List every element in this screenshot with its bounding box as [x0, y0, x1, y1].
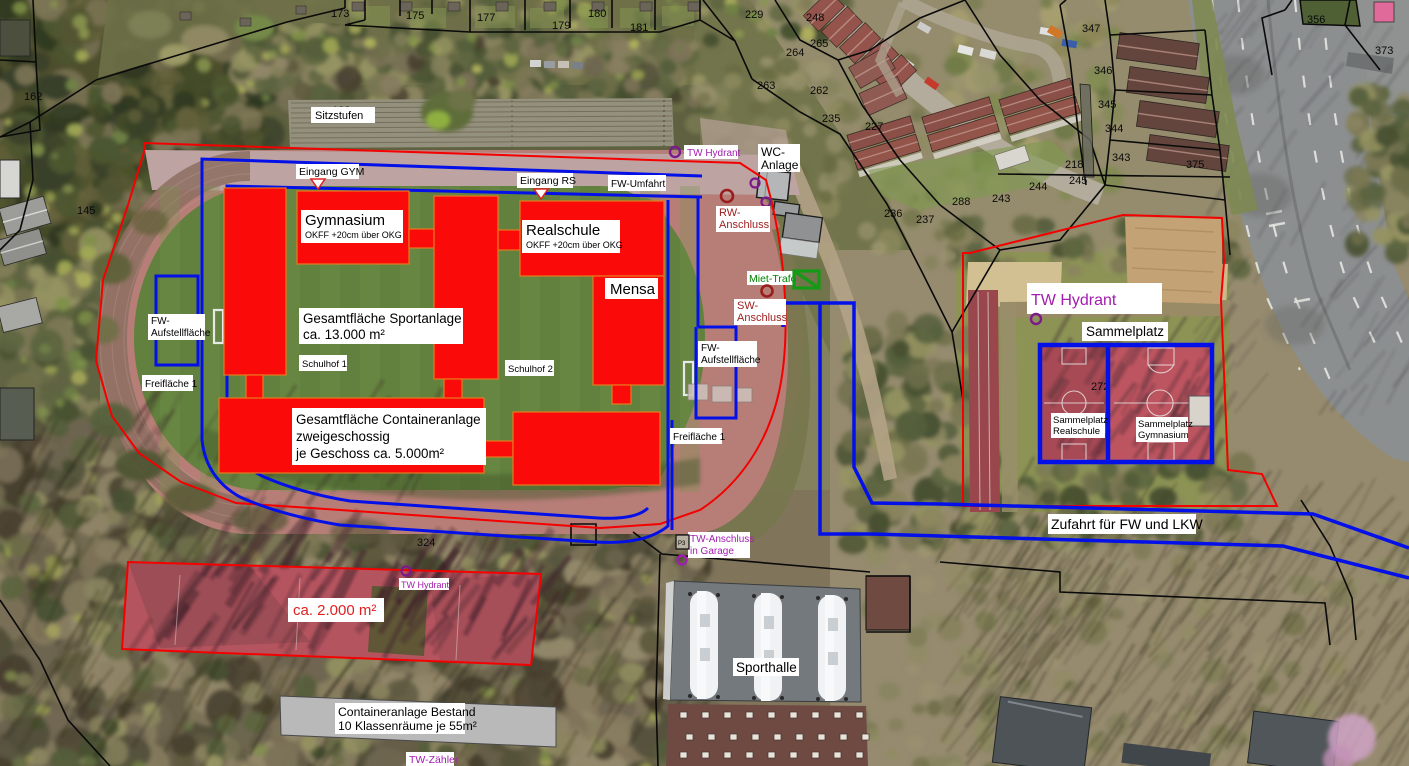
svg-text:zweigeschossig: zweigeschossig	[296, 429, 390, 444]
svg-text:288: 288	[952, 196, 970, 208]
svg-text:TW-Anschluss: TW-Anschluss	[690, 534, 754, 545]
svg-text:343: 343	[1112, 152, 1130, 164]
svg-text:Anlage: Anlage	[761, 158, 799, 172]
svg-text:Sporthalle: Sporthalle	[736, 660, 797, 675]
svg-text:je Geschoss ca. 5.000m²: je Geschoss ca. 5.000m²	[295, 446, 445, 461]
svg-text:175: 175	[406, 10, 424, 22]
svg-text:324: 324	[417, 537, 435, 549]
svg-text:245: 245	[1069, 175, 1087, 187]
svg-text:229: 229	[745, 9, 763, 21]
svg-text:243: 243	[992, 193, 1010, 205]
svg-text:145: 145	[77, 205, 95, 217]
svg-text:Gymnasium: Gymnasium	[1138, 430, 1189, 441]
svg-text:Realschule: Realschule	[1053, 426, 1100, 437]
svg-text:Gesamtfläche Containeranlage: Gesamtfläche Containeranlage	[296, 412, 481, 427]
svg-text:264: 264	[786, 47, 804, 59]
svg-text:Sitzstufen: Sitzstufen	[315, 110, 363, 122]
svg-text:Containeranlage Bestand: Containeranlage Bestand	[338, 705, 476, 719]
svg-text:Anschluss: Anschluss	[719, 219, 770, 231]
svg-text:265: 265	[810, 38, 828, 50]
svg-text:177: 177	[477, 12, 495, 24]
svg-text:TW Hydrant: TW Hydrant	[687, 148, 741, 159]
svg-text:Miet-Trafo: Miet-Trafo	[749, 273, 797, 285]
svg-text:Schulhof 1: Schulhof 1	[302, 359, 347, 370]
svg-text:236: 236	[884, 208, 902, 220]
svg-text:262: 262	[810, 85, 828, 97]
svg-text:180: 180	[588, 8, 606, 20]
svg-text:248: 248	[806, 12, 824, 24]
svg-text:Anschluss: Anschluss	[737, 312, 788, 324]
svg-text:FW-: FW-	[151, 316, 170, 327]
svg-text:181: 181	[630, 22, 648, 34]
svg-text:TW-Zähler: TW-Zähler	[409, 754, 459, 766]
svg-text:WC-: WC-	[761, 145, 785, 159]
svg-text:Aufstellfläche: Aufstellfläche	[151, 328, 211, 339]
svg-text:Sammelplatz: Sammelplatz	[1053, 415, 1108, 426]
svg-text:Gymnasium: Gymnasium	[305, 212, 385, 229]
svg-text:346: 346	[1094, 65, 1112, 77]
svg-text:227: 227	[865, 121, 883, 133]
svg-text:in Garage: in Garage	[690, 546, 734, 557]
svg-text:Mensa: Mensa	[610, 281, 656, 298]
svg-text:373: 373	[1375, 45, 1393, 57]
svg-text:Eingang RS: Eingang RS	[520, 175, 576, 187]
svg-text:Gesamtfläche Sportanlage: Gesamtfläche Sportanlage	[303, 311, 462, 326]
svg-text:OKFF +20cm über OKG: OKFF +20cm über OKG	[305, 230, 402, 240]
svg-text:OKFF +20cm über OKG: OKFF +20cm über OKG	[526, 240, 623, 250]
svg-text:Freifläche 1: Freifläche 1	[673, 432, 726, 443]
svg-text:162: 162	[24, 91, 42, 103]
svg-text:10 Klassenräume je 55m²: 10 Klassenräume je 55m²	[338, 719, 477, 733]
svg-text:Aufstellfläche: Aufstellfläche	[701, 355, 761, 366]
svg-text:344: 344	[1105, 123, 1123, 135]
svg-text:173: 173	[331, 8, 349, 20]
svg-text:TW Hydrant: TW Hydrant	[401, 580, 450, 590]
svg-text:FW-: FW-	[701, 343, 720, 354]
svg-text:ca. 13.000 m²: ca. 13.000 m²	[303, 327, 385, 342]
svg-text:347: 347	[1082, 23, 1100, 35]
svg-text:356: 356	[1307, 14, 1325, 26]
svg-text:FW-Umfahrt: FW-Umfahrt	[611, 179, 665, 190]
svg-text:Sammelplatz: Sammelplatz	[1086, 324, 1164, 339]
svg-text:235: 235	[822, 113, 840, 125]
svg-text:218: 218	[1065, 159, 1083, 171]
svg-text:Schulhof 2: Schulhof 2	[508, 364, 553, 375]
svg-text:Eingang GYM: Eingang GYM	[299, 166, 364, 178]
svg-text:TW Hydrant: TW Hydrant	[1031, 292, 1117, 309]
svg-text:Freifläche 1: Freifläche 1	[145, 379, 198, 390]
svg-text:375: 375	[1186, 159, 1204, 171]
svg-text:Zufahrt für FW und LKW: Zufahrt für FW und LKW	[1051, 516, 1203, 532]
svg-text:Sammelplatz: Sammelplatz	[1138, 419, 1193, 430]
svg-text:P3: P3	[678, 541, 686, 547]
svg-text:345: 345	[1098, 99, 1116, 111]
svg-text:263: 263	[757, 80, 775, 92]
svg-text:244: 244	[1029, 181, 1047, 193]
svg-text:237: 237	[916, 214, 934, 226]
svg-text:RW-: RW-	[719, 207, 741, 219]
svg-text:ca. 2.000 m²: ca. 2.000 m²	[293, 602, 376, 619]
svg-text:Realschule: Realschule	[526, 222, 600, 239]
svg-text:SW-: SW-	[737, 300, 759, 312]
svg-text:179: 179	[552, 20, 570, 32]
